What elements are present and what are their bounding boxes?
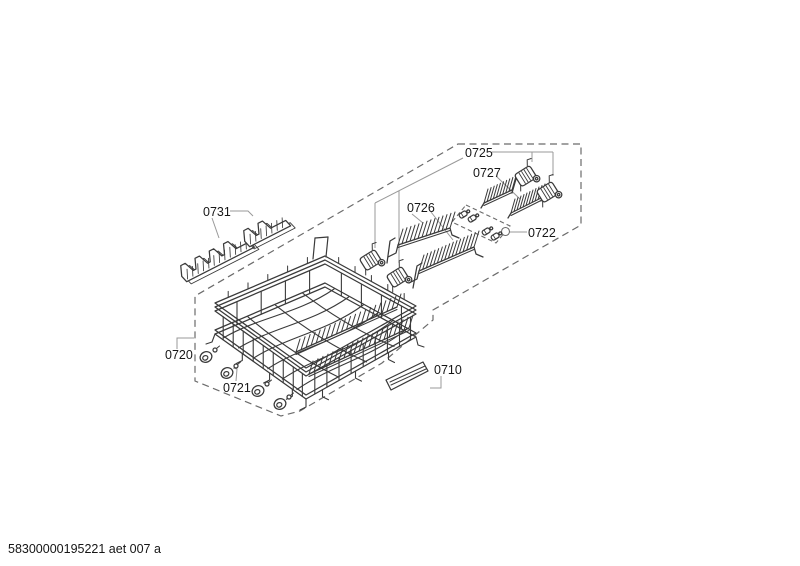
document-number: 58300000195221 aet 007 a	[8, 542, 161, 556]
part-labels: 0725 0727 0726 0722 0731 0720 0721 0710	[165, 146, 556, 395]
part-0731-cup-shelf	[177, 209, 295, 286]
leader-0710	[430, 376, 441, 388]
leader-0731-b	[212, 218, 219, 238]
axle-pin	[490, 230, 502, 240]
leader-0726-a	[412, 214, 423, 223]
leader-0725-diagonal	[375, 158, 463, 203]
clip	[381, 259, 416, 293]
retainer-ring	[502, 228, 510, 236]
exploded-parts-diagram: 0725 0727 0726 0722 0731 0720 0721 0710 …	[0, 0, 800, 566]
part-label-0725: 0725	[465, 146, 493, 160]
wheel	[219, 362, 240, 380]
part-label-0722: 0722	[528, 226, 556, 240]
part-label-0727: 0727	[473, 166, 501, 180]
part-label-0721: 0721	[223, 381, 251, 395]
part-label-0710: 0710	[434, 363, 462, 377]
leader-0731-a	[230, 211, 253, 216]
wheel	[250, 380, 271, 398]
part-label-0726: 0726	[407, 201, 435, 215]
part-0710-trim-plate	[386, 362, 428, 390]
parts-diagram-page: 0725 0727 0726 0722 0731 0720 0721 0710 …	[0, 0, 800, 566]
leader-0721	[233, 368, 237, 381]
part-label-0731: 0731	[203, 205, 231, 219]
wheel	[198, 346, 219, 364]
wheel	[272, 393, 293, 411]
axle-pin	[481, 225, 493, 235]
rail-kit-dashed-outline	[452, 205, 510, 243]
part-0722-axle-pins	[458, 208, 502, 240]
part-label-0720: 0720	[165, 348, 193, 362]
axle-pin	[467, 212, 479, 222]
clip	[354, 242, 389, 276]
